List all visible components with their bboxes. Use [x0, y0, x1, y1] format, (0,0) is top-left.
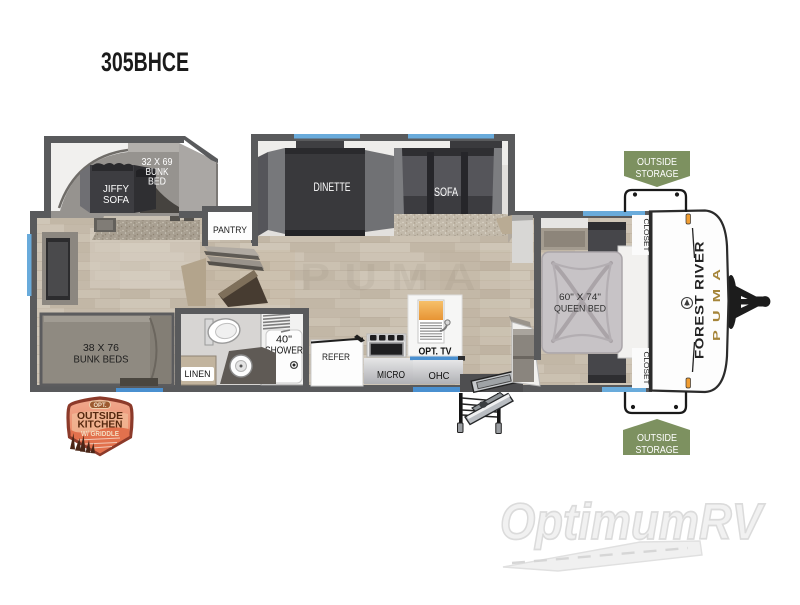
svg-text:OptimumRV: OptimumRV: [500, 493, 766, 550]
svg-text:305BHCE: 305BHCE: [101, 47, 189, 77]
svg-text:STORAGE: STORAGE: [636, 445, 679, 456]
svg-text:MICRO: MICRO: [377, 369, 405, 381]
svg-text:PUMA: PUMA: [712, 261, 723, 341]
svg-text:BED: BED: [148, 176, 166, 188]
svg-text:SOFA: SOFA: [103, 194, 129, 206]
svg-text:40": 40": [276, 335, 292, 346]
svg-text:38 X 76: 38 X 76: [83, 342, 119, 354]
svg-text:PANTRY: PANTRY: [213, 225, 248, 236]
svg-text:OUTSIDE: OUTSIDE: [637, 433, 677, 444]
svg-text:SOFA: SOFA: [434, 187, 458, 199]
svg-text:W/ GRIDDLE: W/ GRIDDLE: [81, 429, 119, 438]
svg-text:OPT.: OPT.: [94, 402, 107, 409]
svg-text:OUTSIDE: OUTSIDE: [637, 157, 677, 168]
svg-text:BUNK BEDS: BUNK BEDS: [74, 354, 129, 366]
svg-text:PUMA: PUMA: [300, 257, 490, 299]
svg-text:OHC: OHC: [429, 370, 450, 382]
svg-text:DINETTE: DINETTE: [314, 182, 351, 194]
svg-text:REFER: REFER: [322, 352, 350, 363]
svg-text:QUEEN BED: QUEEN BED: [554, 304, 606, 315]
svg-text:STORAGE: STORAGE: [636, 169, 679, 180]
svg-text:FOREST RIVER: FOREST RIVER: [693, 241, 707, 359]
svg-text:OPT. TV: OPT. TV: [419, 347, 452, 358]
svg-text:LINEN: LINEN: [185, 369, 211, 380]
svg-text:60" X 74": 60" X 74": [559, 292, 601, 302]
